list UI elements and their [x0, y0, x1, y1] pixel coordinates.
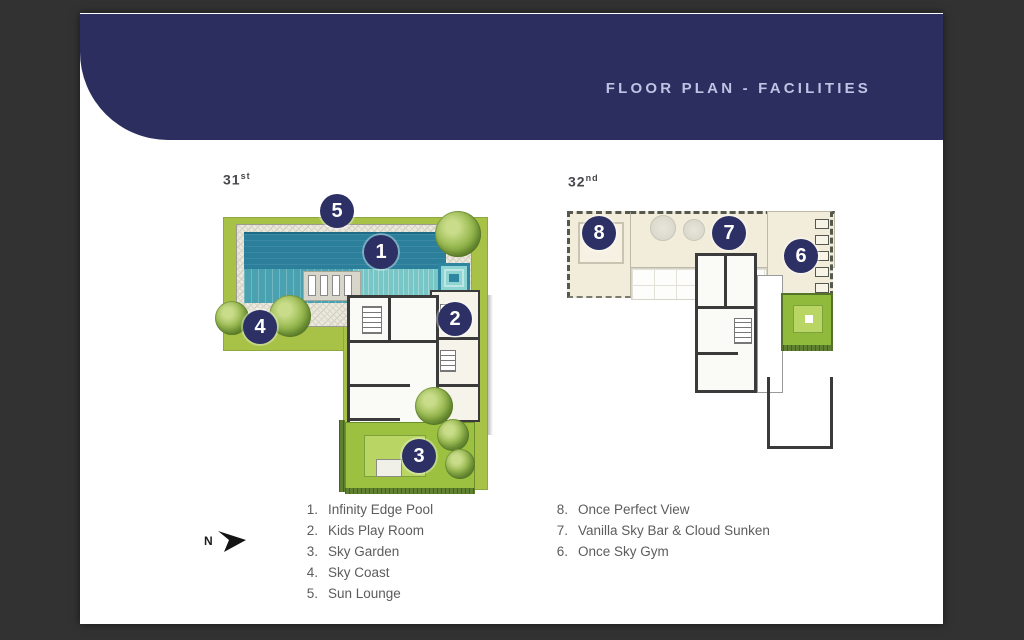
garden-feature — [805, 315, 813, 323]
legend-item: 6.Once Sky Gym — [548, 541, 770, 562]
legend-item: 4.Sky Coast — [298, 562, 433, 583]
page-title: FLOOR PLAN - FACILITIES — [606, 80, 871, 97]
floor-suffix: nd — [586, 173, 599, 183]
badge-2: 2 — [438, 302, 472, 336]
interior-wall — [350, 384, 410, 387]
legend-num: 7. — [548, 523, 568, 538]
legend-num: 5. — [298, 586, 318, 601]
lounger — [344, 275, 352, 296]
badge-5: 5 — [320, 194, 354, 228]
floor-number: 31 — [223, 172, 241, 188]
infinity-edge-pool — [244, 232, 446, 269]
badge-7: 7 — [712, 216, 746, 250]
gym-equipment — [815, 283, 829, 293]
legend-label: Kids Play Room — [328, 523, 424, 538]
gym-equipment — [815, 267, 829, 277]
compass: N — [204, 527, 247, 554]
tree-icon — [435, 211, 481, 257]
badge-8: 8 — [582, 216, 616, 250]
north-arrow-icon — [217, 527, 247, 554]
legend-num: 3. — [298, 544, 318, 559]
interior-wall — [350, 340, 436, 343]
hedge — [345, 488, 475, 494]
legend-label: Vanilla Sky Bar & Cloud Sunken — [578, 523, 770, 538]
legend-item: 8.Once Perfect View — [548, 499, 770, 520]
stairs — [734, 318, 752, 344]
legend-label: Infinity Edge Pool — [328, 502, 433, 517]
legend-31: 1.Infinity Edge Pool 2.Kids Play Room 3.… — [298, 499, 433, 604]
lounger — [320, 275, 328, 296]
badge-6: 6 — [784, 239, 818, 273]
hedge — [339, 420, 345, 492]
badge-1: 1 — [364, 235, 398, 269]
interior-wall — [698, 352, 738, 355]
hedge — [783, 345, 831, 351]
spa-core — [449, 274, 459, 282]
legend-item: 1.Infinity Edge Pool — [298, 499, 433, 520]
corridor — [757, 275, 783, 393]
legend-item: 7.Vanilla Sky Bar & Cloud Sunken — [548, 520, 770, 541]
stairs — [362, 306, 382, 334]
legend-label: Sky Coast — [328, 565, 390, 580]
lounger — [332, 275, 340, 296]
room-fixture — [440, 350, 456, 372]
floor-plan-31: 5 1 4 2 3 — [223, 205, 491, 497]
tower-core-building — [695, 253, 757, 393]
floor-label-31: 31st — [223, 171, 251, 188]
legend-label: Sun Lounge — [328, 586, 401, 601]
tree-icon — [683, 219, 705, 241]
interior-wall — [724, 256, 727, 308]
legend-32: 8.Once Perfect View 7.Vanilla Sky Bar & … — [548, 499, 770, 562]
legend-label: Once Sky Gym — [578, 544, 669, 559]
garden-pavilion — [376, 459, 402, 477]
legend-item: 2.Kids Play Room — [298, 520, 433, 541]
badge-3: 3 — [402, 439, 436, 473]
spa-pool — [438, 263, 470, 293]
tree-icon — [650, 215, 676, 241]
badge-4: 4 — [243, 310, 277, 344]
tree-icon — [437, 419, 469, 451]
floor-label-32: 32nd — [568, 173, 599, 190]
plan-shadow — [488, 295, 493, 435]
legend-label: Sky Garden — [328, 544, 399, 559]
header-banner: FLOOR PLAN - FACILITIES — [80, 14, 943, 140]
north-label: N — [204, 534, 214, 548]
slide-page: FLOOR PLAN - FACILITIES 31st 32nd — [80, 13, 943, 624]
legend-num: 8. — [548, 502, 568, 517]
interior-wall — [388, 298, 391, 343]
balcony-outline — [767, 377, 833, 449]
interior-wall — [350, 418, 400, 421]
window-frame: FLOOR PLAN - FACILITIES 31st 32nd — [0, 0, 1024, 640]
legend-item: 5.Sun Lounge — [298, 583, 433, 604]
legend-label: Once Perfect View — [578, 502, 690, 517]
legend-num: 2. — [298, 523, 318, 538]
legend-num: 6. — [548, 544, 568, 559]
legend-num: 1. — [298, 502, 318, 517]
gym-equipment — [815, 235, 829, 245]
floor-number: 32 — [568, 174, 586, 190]
lounger — [308, 275, 316, 296]
floor-plan-32: 8 7 6 — [565, 205, 837, 467]
gym-equipment — [815, 219, 829, 229]
legend-num: 4. — [298, 565, 318, 580]
legend-item: 3.Sky Garden — [298, 541, 433, 562]
tree-icon — [445, 449, 475, 479]
gym-garden — [781, 293, 833, 351]
floor-suffix: st — [241, 171, 251, 181]
